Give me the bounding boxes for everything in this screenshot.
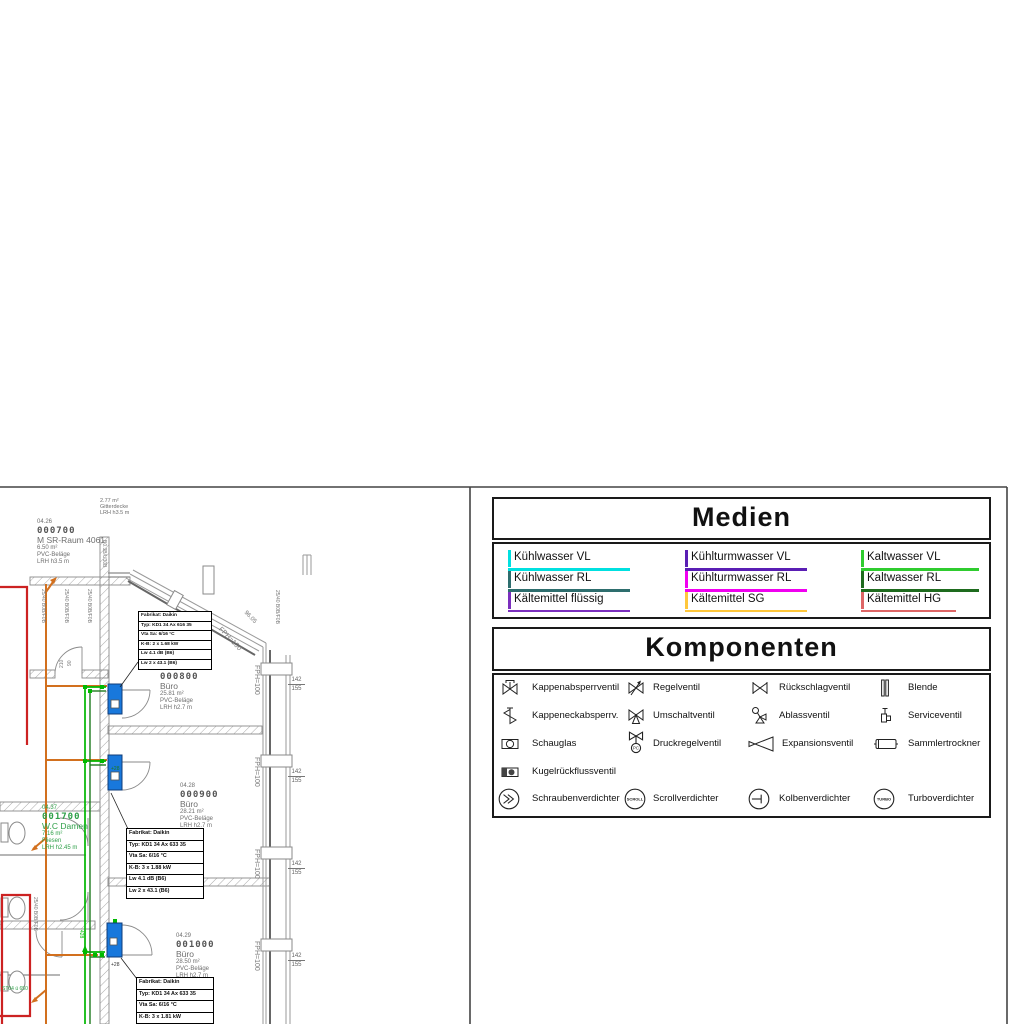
pipe-orange-arrowheads bbox=[31, 577, 57, 1003]
color-line bbox=[508, 610, 630, 612]
rueckschlagventil-icon bbox=[749, 678, 771, 698]
equipment-table-2: Fabrikat: Daikin Typ: KD1 34 Ax 633 35 V… bbox=[126, 828, 204, 899]
wc-fixtures bbox=[1, 822, 25, 993]
room-id: 04.26 bbox=[37, 519, 105, 526]
legend-label: Kugelrückflussventil bbox=[532, 766, 616, 777]
table-row: Lw 4.1 dB (B6) bbox=[127, 875, 203, 887]
legend-label: Kühlwasser VL bbox=[514, 551, 591, 563]
door-height-label: 210 bbox=[59, 660, 65, 668]
druckregelventil-icon: PC bbox=[625, 730, 647, 754]
color-bar bbox=[861, 592, 864, 609]
window-label-top: 142 bbox=[288, 952, 305, 961]
window-label-top: 142 bbox=[288, 676, 305, 685]
legend-label: Kältemittel HG bbox=[867, 593, 941, 605]
color-line bbox=[685, 610, 807, 612]
room-label-wc-damen: 04.37 001700 W.C Damen 7.16 m² Fliesen L… bbox=[42, 805, 88, 851]
legend-label: Serviceventil bbox=[908, 710, 962, 721]
color-bar bbox=[508, 592, 511, 609]
window-label-top: 142 bbox=[288, 860, 305, 869]
duct-tag-3: 25/40 B0B/F0B bbox=[86, 589, 92, 623]
table-row: Lw 4.1 dB (B6) bbox=[139, 650, 211, 660]
scrollverdichter-icon-text: SCROLL bbox=[627, 797, 644, 802]
legend-label: Kaltwasser VL bbox=[867, 551, 941, 563]
pipe-note: ST04 ü 650 bbox=[2, 986, 28, 992]
room-area: 28.21 m² bbox=[180, 809, 219, 816]
color-bar bbox=[508, 571, 511, 588]
legend-item-kaltwasser-vl: Kaltwasser VL bbox=[861, 550, 983, 571]
komponenten-title: Komponenten bbox=[494, 632, 989, 663]
window-label-top: 142 bbox=[288, 768, 305, 777]
legend-item-kuehlturmwasser-vl: Kühlturmwasser VL bbox=[685, 550, 815, 571]
pipe-label-unit2: +28 bbox=[111, 766, 119, 772]
scrollverdichter-icon: SCROLL bbox=[623, 787, 647, 811]
room-id: 04.37 bbox=[42, 805, 88, 812]
window-label-bottom: 155 bbox=[291, 870, 301, 876]
color-bar bbox=[861, 550, 864, 567]
duct-tag-facade: 25/40 B0B/F0B bbox=[274, 590, 280, 624]
legend-label: Regelventil bbox=[653, 682, 700, 693]
room-area: 7.16 m² bbox=[42, 831, 88, 838]
window-label-bottom: 155 bbox=[291, 778, 301, 784]
shaft-height: LRH h3.5 m bbox=[100, 510, 129, 516]
medien-title: Medien bbox=[494, 502, 989, 533]
umschaltventil-icon bbox=[625, 706, 647, 726]
room-id: 04.28 bbox=[180, 783, 219, 790]
duct-tag-wc: 25/40 B0B/F0B bbox=[32, 897, 38, 931]
table-row: Lw 2 x 43.1 (B6) bbox=[139, 660, 211, 669]
legend-label: Kappenabsperrventil bbox=[532, 682, 619, 693]
komponenten-items-box: Kappenabsperrventil Regelventil Rückschl… bbox=[492, 673, 991, 818]
window-label-2: 142 155 bbox=[288, 768, 305, 786]
kappenabsperrventil-icon bbox=[499, 678, 521, 698]
sammlertrockner-icon bbox=[871, 734, 901, 754]
room-label-0426: 04.26 000700 M SR-Raum 4061 6.50 m² PVC-… bbox=[37, 519, 105, 565]
table-row: K-B: 2 x 1.68 kW bbox=[139, 641, 211, 651]
turboverdichter-icon-text: TURBO bbox=[877, 797, 891, 802]
expansionsventil-icon bbox=[746, 734, 776, 754]
room-name: Büro bbox=[160, 682, 199, 692]
medien-items-box: Kühlwasser VL Kühlwasser RL Kältemittel … bbox=[492, 542, 991, 619]
window-label-4: 142 155 bbox=[288, 952, 305, 970]
door-width-label: 90 bbox=[67, 660, 73, 666]
room-name: Büro bbox=[180, 800, 219, 810]
table-row: Lw 2 x 43.1 (B6) bbox=[127, 887, 203, 898]
legend-label: Kaltwasser RL bbox=[867, 572, 941, 584]
legend-label: Scrollverdichter bbox=[653, 793, 718, 804]
duct-tag-2: 25/40 B0B/F0B bbox=[63, 589, 69, 623]
legend-label: Kältemittel SG bbox=[691, 593, 765, 605]
fancoil-grilles bbox=[110, 700, 119, 945]
facade-label-1: FPH=100 bbox=[253, 665, 260, 695]
color-bar bbox=[861, 571, 864, 588]
legend-item-kuehlturmwasser-rl: Kühlturmwasser RL bbox=[685, 571, 815, 592]
table-row: Fabrikat: Daikin bbox=[139, 612, 211, 622]
schraubenverdichter-icon bbox=[497, 787, 521, 811]
window-label-bottom: 155 bbox=[291, 686, 301, 692]
window-label-1: 142 155 bbox=[288, 676, 305, 694]
legend-label: Kolbenverdichter bbox=[779, 793, 850, 804]
legend-item-kaeltemittel-sg: Kältemittel SG bbox=[685, 592, 815, 613]
window-label-3: 142 155 bbox=[288, 860, 305, 878]
room-height: LRH h2.7 m bbox=[160, 705, 199, 712]
legend-item-kaeltemittel-fluessig: Kältemittel flüssig bbox=[508, 592, 638, 613]
room-label-0429: 04.29 001000 Büro 28.50 m² PVC-Beläge LR… bbox=[176, 933, 215, 979]
kugelrueckflussventil-icon bbox=[499, 762, 521, 782]
wall-tag: B0.3B/U30B bbox=[101, 540, 107, 568]
table-row: Typ: KD1 34 Ax 633 35 bbox=[137, 990, 213, 1002]
legend-label: Sammlertrockner bbox=[908, 738, 980, 749]
kolbenverdichter-icon bbox=[747, 787, 771, 811]
room-name: Büro bbox=[176, 950, 215, 960]
equipment-table-3: Fabrikat: Daikin Typ: KD1 34 Ax 633 35 V… bbox=[136, 977, 214, 1024]
pipe-label-unit3: +28 bbox=[111, 962, 119, 968]
ablassventil-icon bbox=[749, 706, 771, 726]
room-name: W.C Damen bbox=[42, 822, 88, 832]
color-bar bbox=[685, 550, 688, 567]
room-floor: PVC-Beläge bbox=[180, 816, 219, 823]
table-row: Typ: KD1 34 Ax 633 35 bbox=[127, 841, 203, 853]
legend-item-kaltwasser-rl: Kaltwasser RL bbox=[861, 571, 983, 592]
legend-label: Kältemittel flüssig bbox=[514, 593, 603, 605]
table-row: K-B: 3 x 1.81 kW bbox=[137, 1013, 213, 1024]
room-height: LRH h3.5 m bbox=[37, 559, 105, 566]
color-bar bbox=[685, 571, 688, 588]
legend-label: Rückschlagventil bbox=[779, 682, 850, 693]
table-row: Typ: KD1 34 Ax 616 35 bbox=[139, 622, 211, 632]
room-area: 28.50 m² bbox=[176, 959, 215, 966]
shaft-label: 2.77 m² Gitterdecke LRH h3.5 m bbox=[100, 498, 129, 516]
legend-label: Kühlturmwasser VL bbox=[691, 551, 791, 563]
legend-label: Kappeneckabsperrv. bbox=[532, 710, 618, 721]
color-bar bbox=[508, 550, 511, 567]
room-label-0427: 04.27 000800 Büro 25.81 m² PVC-Beläge LR… bbox=[160, 665, 199, 711]
room-area: 25.81 m² bbox=[160, 691, 199, 698]
turboverdichter-icon: TURBO bbox=[872, 787, 896, 811]
room-height: LRH h2.45 m bbox=[42, 845, 88, 852]
druckregelventil-icon-text: PC bbox=[633, 746, 639, 751]
room-id: 04.29 bbox=[176, 933, 215, 940]
color-bar bbox=[685, 592, 688, 609]
table-row: Fabrikat: Daikin bbox=[137, 978, 213, 990]
medien-title-box: Medien bbox=[492, 497, 991, 540]
drawing-sheet: { "plan": { "shaft_label": {"area": "2.7… bbox=[0, 0, 1024, 1024]
legend-label: Ablassventil bbox=[779, 710, 830, 721]
regelventil-icon bbox=[625, 678, 647, 698]
legend-item-kuehlwasser-vl: Kühlwasser VL bbox=[508, 550, 638, 571]
komponenten-title-box: Komponenten bbox=[492, 627, 991, 671]
pipe-label-riser: 428 bbox=[78, 930, 84, 938]
legend-label: Umschaltventil bbox=[653, 710, 715, 721]
legend-label: Kühlturmwasser RL bbox=[691, 572, 791, 584]
room-area: 6.50 m² bbox=[37, 545, 105, 552]
equipment-table-1: Fabrikat: Daikin Typ: KD1 34 Ax 616 35 V… bbox=[138, 611, 212, 670]
table-row: Fabrikat: Daikin bbox=[127, 829, 203, 841]
room-name: M SR-Raum 4061 bbox=[37, 536, 105, 546]
legend-label: Blende bbox=[908, 682, 938, 693]
legend-item-kuehlwasser-rl: Kühlwasser RL bbox=[508, 571, 638, 592]
room-floor: Fliesen bbox=[42, 838, 88, 845]
serviceventil-icon bbox=[874, 706, 896, 726]
table-row: K-B: 3 x 1.88 kW bbox=[127, 864, 203, 876]
legend-label: Expansionsventil bbox=[782, 738, 853, 749]
facade-label-3: FPH=100 bbox=[253, 849, 260, 879]
blende-icon bbox=[874, 678, 896, 698]
duct-tag-1: 25/40 B0B/F0B bbox=[40, 589, 46, 623]
room-floor: PVC-Beläge bbox=[176, 966, 215, 973]
table-row: Vta Sa: 6/16 °C bbox=[127, 852, 203, 864]
kappeneckabsperrventil-icon bbox=[499, 706, 521, 726]
color-line bbox=[861, 610, 956, 612]
table-row: Vta Sa: 6/16 °C bbox=[137, 1001, 213, 1013]
legend-label: Druckregelventil bbox=[653, 738, 721, 749]
facade-label-2: FPH=100 bbox=[253, 757, 260, 787]
legend-label: Kühlwasser RL bbox=[514, 572, 591, 584]
facade-label-4: FPH=100 bbox=[253, 941, 260, 971]
legend-label: Schraubenverdichter bbox=[532, 793, 620, 804]
room-label-0428: 04.28 000900 Büro 28.21 m² PVC-Beläge LR… bbox=[180, 783, 219, 829]
room-floor: PVC-Beläge bbox=[160, 698, 199, 705]
schauglas-icon bbox=[499, 734, 521, 754]
legend-item-kaeltemittel-hg: Kältemittel HG bbox=[861, 592, 983, 613]
legend-label: Turboverdichter bbox=[908, 793, 974, 804]
table-row: Vta Sa: 6/16 °C bbox=[139, 631, 211, 641]
legend-label: Schauglas bbox=[532, 738, 576, 749]
room-floor: PVC-Beläge bbox=[37, 552, 105, 559]
window-label-bottom: 155 bbox=[291, 962, 301, 968]
